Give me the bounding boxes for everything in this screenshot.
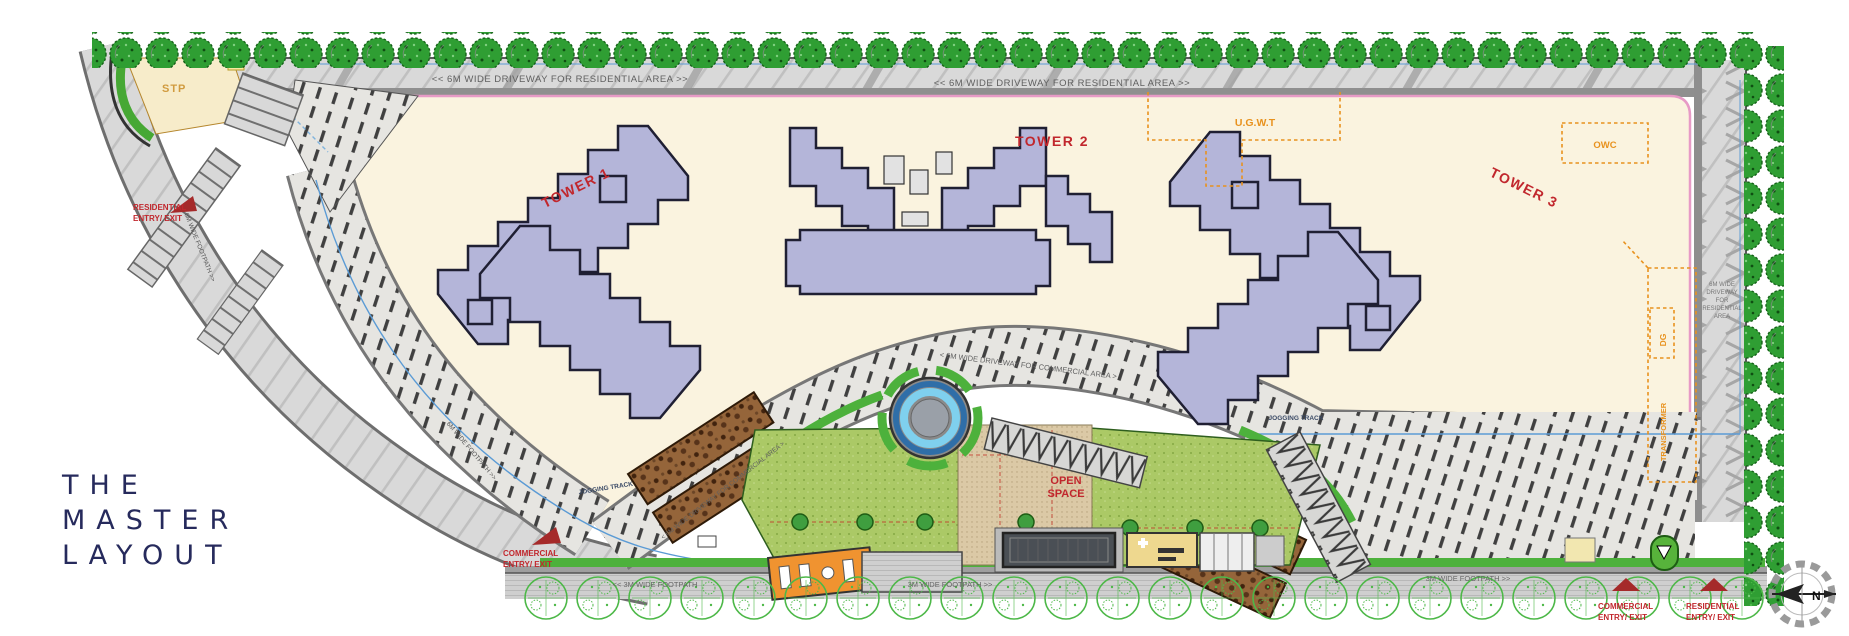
bottom-footpath-label-1: << 3M WIDE FOOTPATH: [613, 580, 698, 589]
right-tree-column: [1744, 46, 1784, 606]
svg-text:RESIDENTIAL: RESIDENTIAL: [133, 203, 186, 212]
compass-north-label: N: [1812, 589, 1821, 603]
lap-pool: [995, 528, 1123, 572]
jogging-track-label-2: JOGGING TRACK: [1269, 415, 1324, 422]
tower-2-label: TOWER 2: [1015, 133, 1089, 149]
page-title: THE MASTER LAYOUT: [62, 468, 239, 573]
svg-text:RESIDENTIAL: RESIDENTIAL: [1686, 602, 1739, 611]
svg-text:ENTRY/ EXIT: ENTRY/ EXIT: [1686, 613, 1735, 622]
master-layout-page: STP: [0, 0, 1849, 636]
exit-arrow-pill: [1651, 536, 1678, 570]
owc-label: OWC: [1593, 140, 1616, 151]
stp-label: STP: [162, 83, 186, 95]
clubhouse: [1127, 533, 1197, 567]
title-line-3: LAYOUT: [62, 538, 239, 573]
svg-text:COMMERCIAL: COMMERCIAL: [1598, 602, 1653, 611]
open-space-label-line1: OPEN: [1050, 475, 1081, 487]
svg-text:DRIVEWAY: DRIVEWAY: [1706, 290, 1737, 296]
bottom-tree-row: [520, 568, 1765, 626]
title-line-1: THE: [62, 468, 239, 503]
svg-text:FOR: FOR: [1716, 298, 1729, 304]
dg-label: DG: [1658, 333, 1668, 346]
site-plan: STP: [0, 0, 1849, 636]
bottom-footpath-label-2: 3M WIDE FOOTPATH >>: [908, 580, 993, 589]
bottom-footpath-label-3: 3M WIDE FOOTPATH >>: [1426, 574, 1511, 583]
top-driveway-label-2: << 6M WIDE DRIVEWAY FOR RESIDENTIAL AREA…: [934, 78, 1190, 89]
svg-text:6M WIDE: 6M WIDE: [1709, 282, 1735, 288]
top-tree-row: [92, 32, 1768, 68]
top-driveway-label-1: << 6M WIDE DRIVEWAY FOR RESIDENTIAL AREA…: [432, 74, 688, 85]
title-line-2: MASTER: [62, 503, 239, 538]
transformer-label: TRANSFORMER: [1659, 402, 1668, 461]
open-space-label-line2: SPACE: [1047, 488, 1084, 500]
svg-text:RESIDENTIAL: RESIDENTIAL: [1702, 306, 1742, 312]
svg-text:AREA: AREA: [1714, 314, 1730, 320]
ugwt-label: U.G.W.T: [1235, 117, 1276, 129]
svg-text:ENTRY/ EXIT: ENTRY/ EXIT: [1598, 613, 1647, 622]
svg-text:COMMERCIAL: COMMERCIAL: [503, 549, 558, 558]
svg-text:ENTRY/ EXIT: ENTRY/ EXIT: [133, 214, 182, 223]
svg-text:ENTRY/ EXIT: ENTRY/ EXIT: [503, 560, 552, 569]
